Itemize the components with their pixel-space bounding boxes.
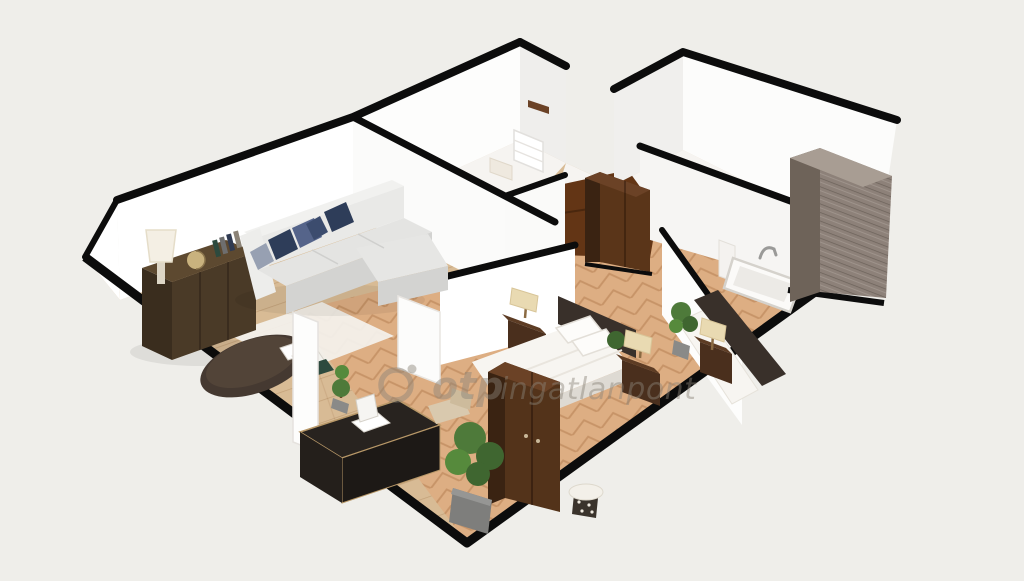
gray-wardrobe-side — [790, 148, 820, 302]
small-plant — [607, 331, 625, 349]
floorplan-svg: otp ingatlanpont — [0, 0, 1024, 581]
stool — [569, 484, 603, 518]
stool-top — [569, 484, 603, 500]
watermark-text-otp: otp — [432, 364, 503, 408]
wardrobe-handle — [536, 439, 540, 443]
wardrobe-side — [585, 172, 600, 262]
middle-room-wardrobe — [585, 172, 652, 274]
lamp-shade — [146, 230, 176, 262]
wardrobe-handle — [524, 434, 528, 438]
floorplan-render: otp ingatlanpont — [0, 0, 1024, 581]
gray-wardrobe — [788, 148, 892, 303]
watermark-text-ingatlanpont: ingatlanpont — [500, 372, 697, 407]
